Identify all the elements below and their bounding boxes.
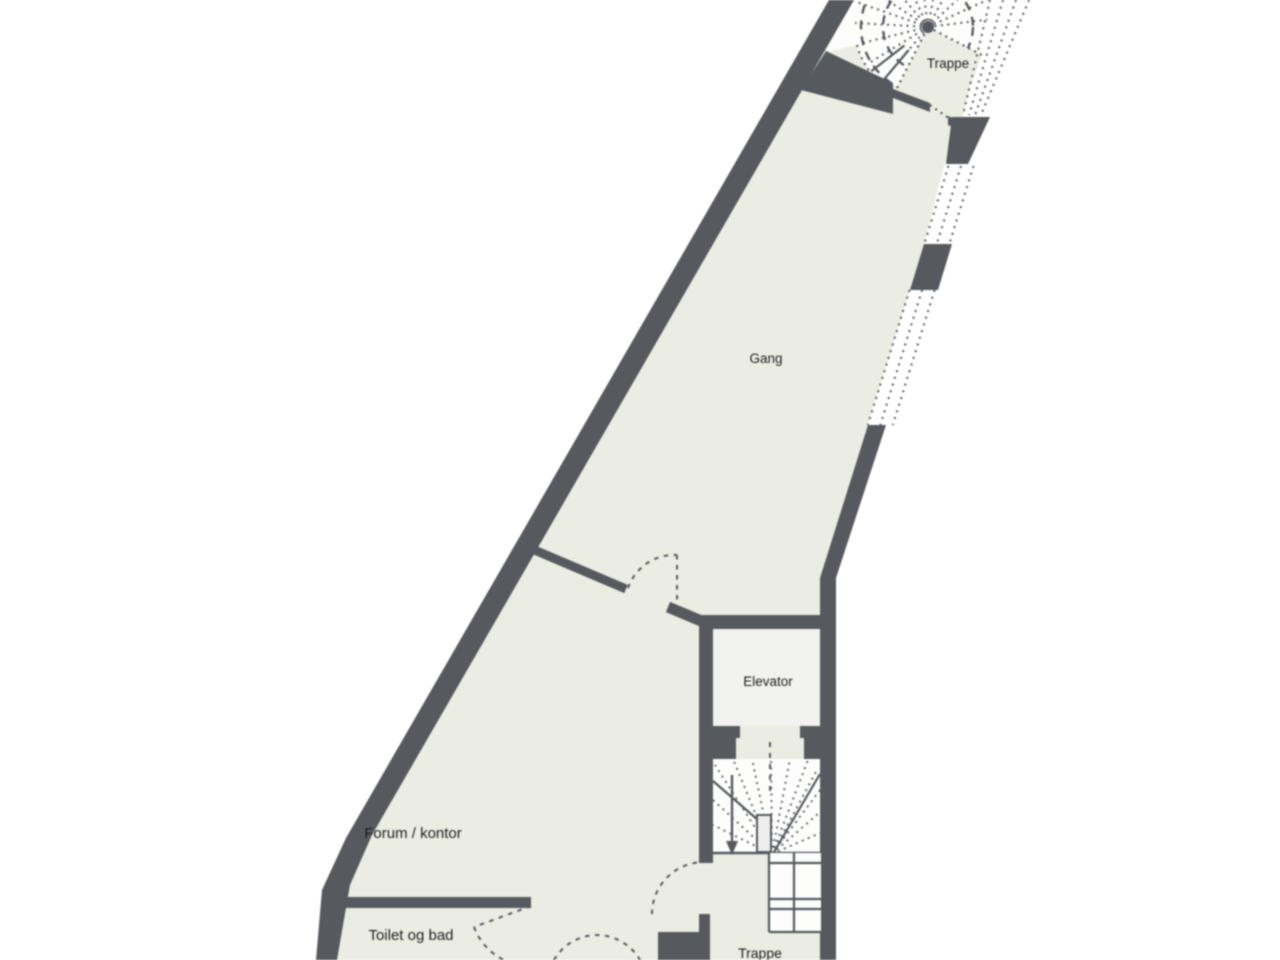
svg-text:Gang: Gang [749, 351, 782, 366]
svg-text:Toilet og bad: Toilet og bad [368, 927, 453, 944]
svg-text:Trappe: Trappe [927, 56, 969, 71]
svg-text:Forum / kontor: Forum / kontor [364, 825, 462, 842]
svg-text:Elevator: Elevator [743, 674, 793, 689]
svg-text:Trappe: Trappe [738, 945, 782, 960]
